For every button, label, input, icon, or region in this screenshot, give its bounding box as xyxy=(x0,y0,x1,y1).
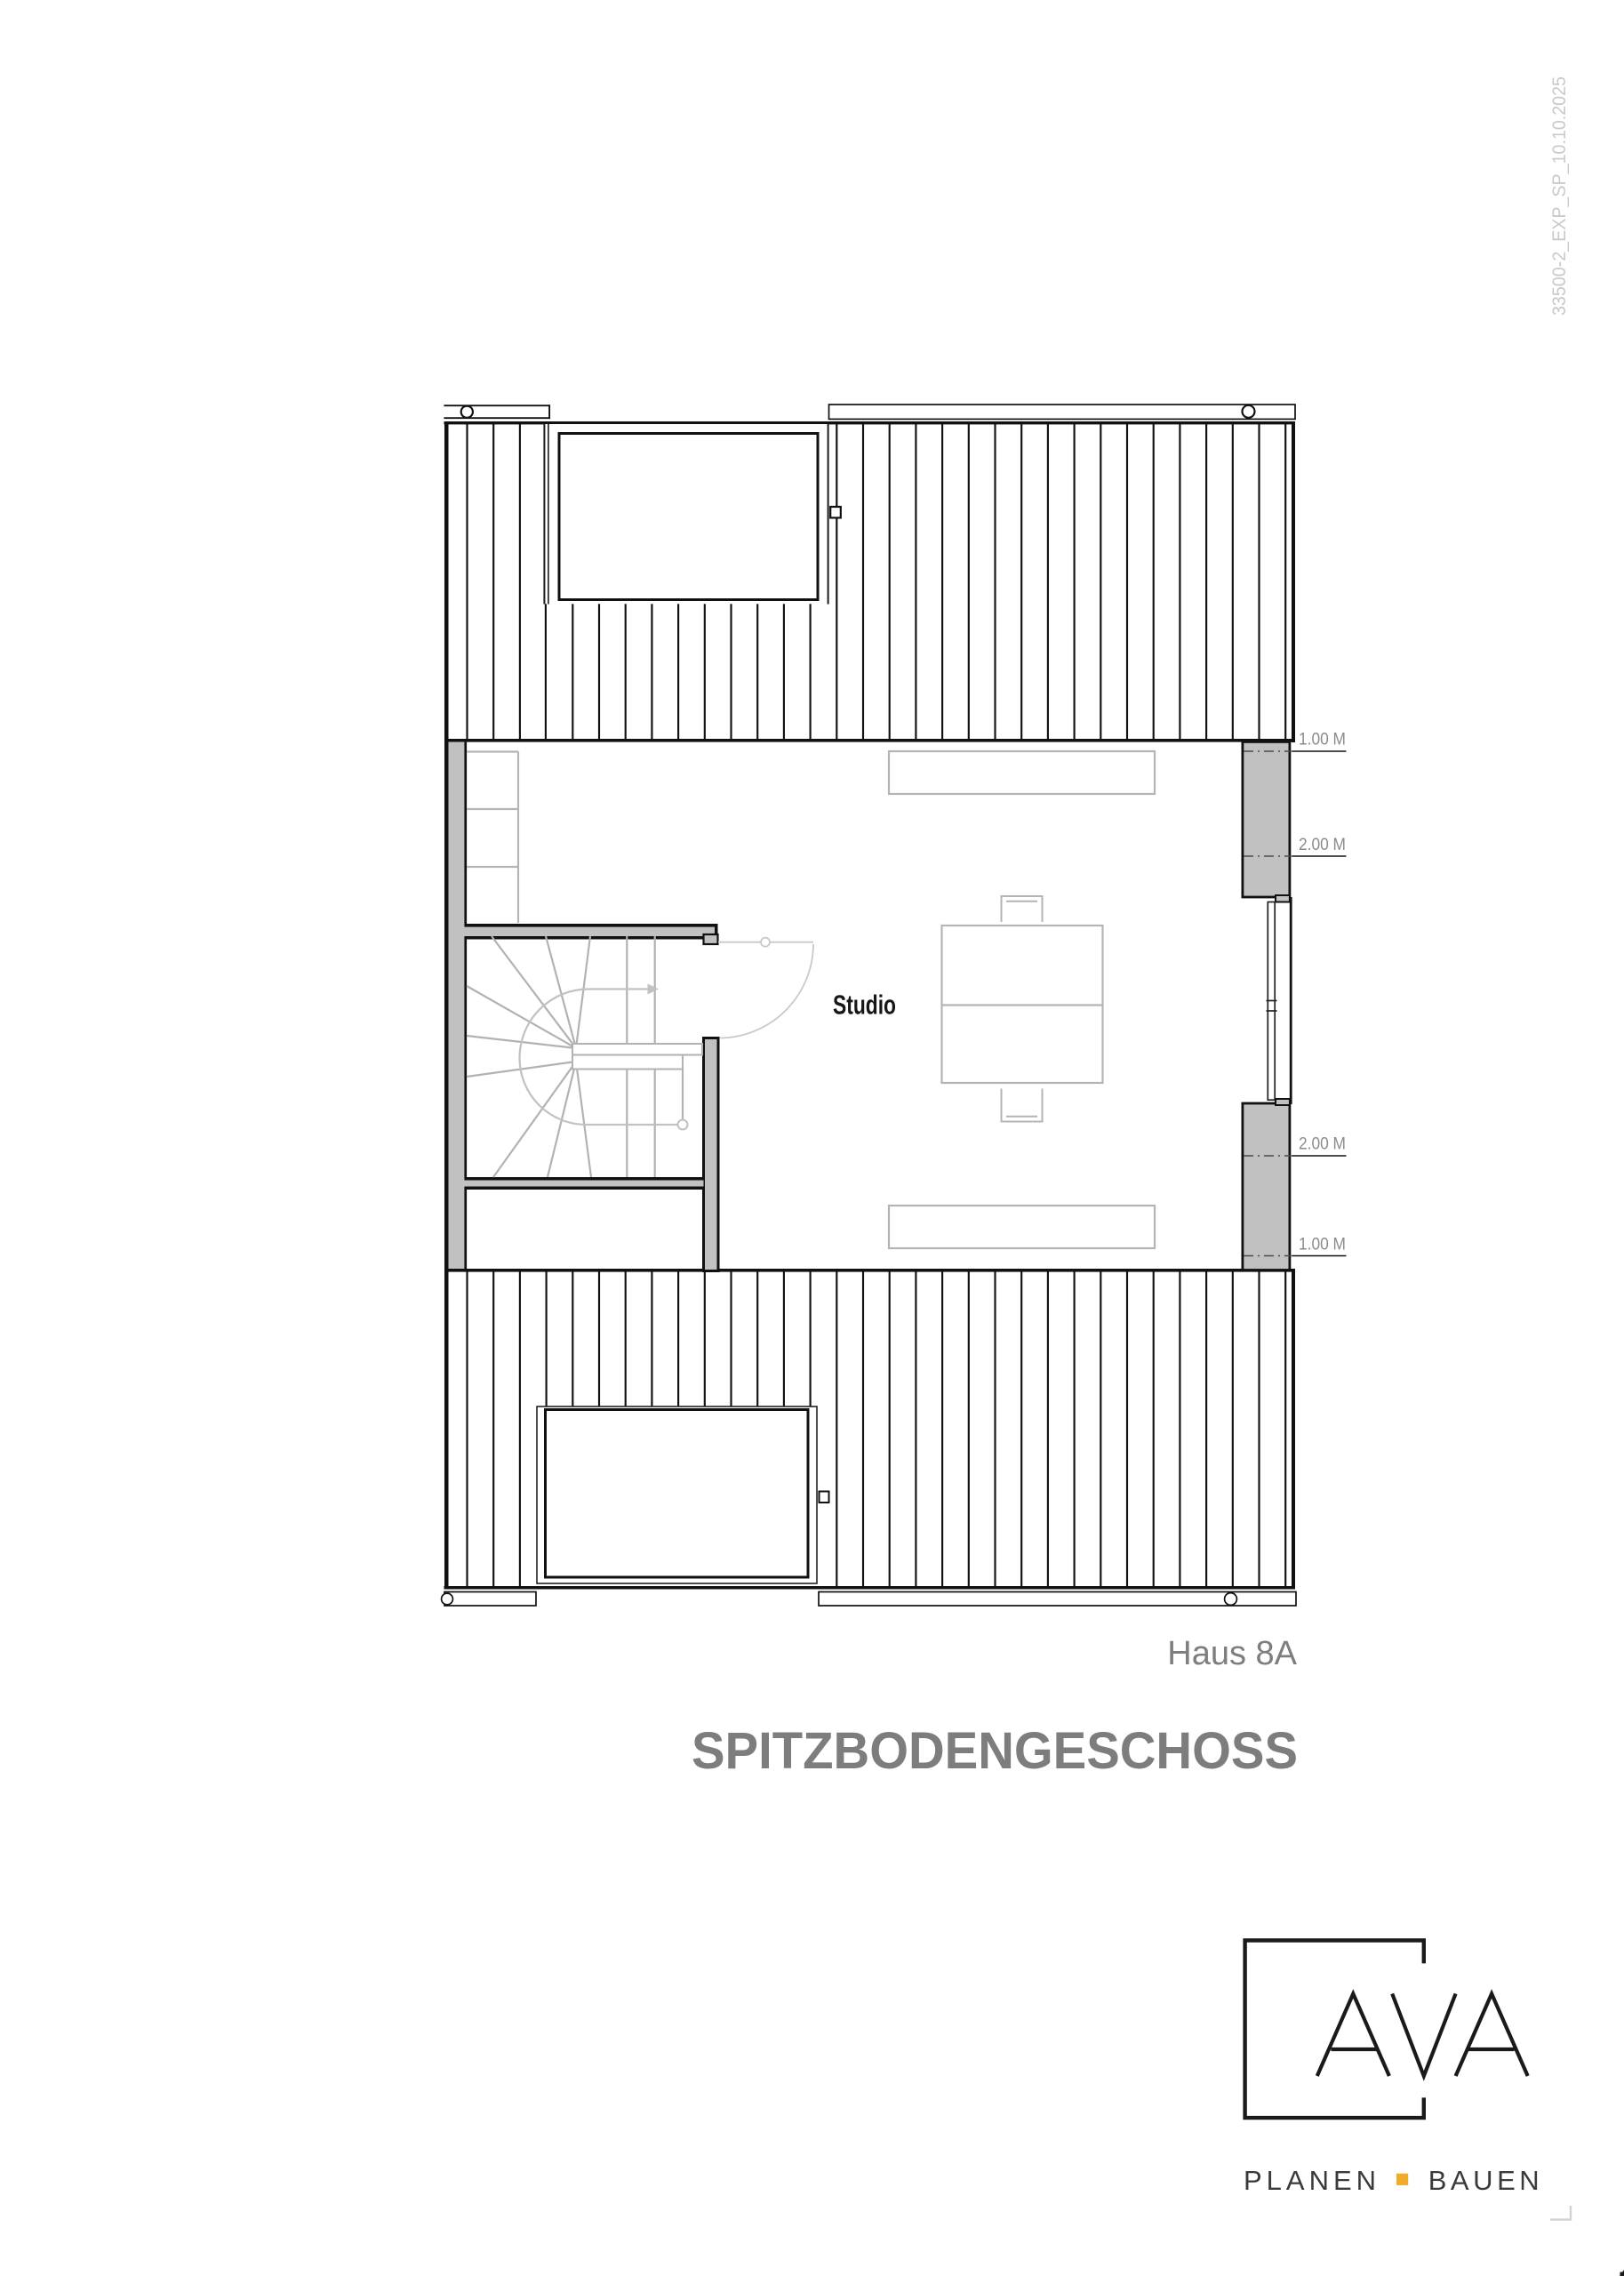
svg-text:SPITZBODENGESCHOSS: SPITZBODENGESCHOSS xyxy=(692,1722,1298,1780)
svg-text:Haus 8A: Haus 8A xyxy=(1167,1635,1297,1672)
svg-text:BAUEN: BAUEN xyxy=(1428,2165,1540,2196)
svg-text:2.00 M: 2.00 M xyxy=(1299,1134,1346,1154)
svg-text:2.00 M: 2.00 M xyxy=(1299,835,1346,854)
svg-text:1.00 M: 1.00 M xyxy=(1299,730,1346,749)
svg-text:33500-2_EXP_SP_10.10.2025: 33500-2_EXP_SP_10.10.2025 xyxy=(1548,76,1570,316)
svg-text:1.00 M: 1.00 M xyxy=(1299,1235,1346,1254)
svg-text:Studio: Studio xyxy=(833,990,896,1021)
